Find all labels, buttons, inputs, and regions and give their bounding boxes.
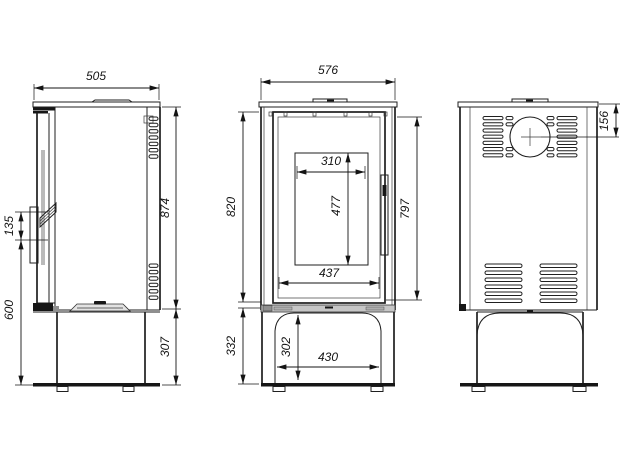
side-base-height-dim-label: 307 (158, 336, 172, 357)
dim-front-glass-width: 310 (297, 154, 365, 179)
dim-front-door-height: 797 (386, 117, 422, 300)
stove-dimension-drawing: 505 874 307 135 600 (0, 0, 624, 460)
dim-front-glass-height: 477 (329, 153, 348, 265)
side-handle-span-dim-label: 135 (2, 216, 16, 236)
side-lower-vents (149, 264, 158, 299)
front-plinth-bar (261, 305, 395, 312)
stove-dimension-drawing-page: 505 874 307 135 600 (0, 0, 624, 460)
back-view: 156 (458, 99, 620, 392)
front-base-height-dim-label: 332 (224, 336, 238, 356)
front-body-height-dim-label: 820 (224, 197, 238, 217)
front-glass-height-dim-label: 477 (329, 195, 343, 216)
front-base-opening-width-dim-label: 430 (318, 350, 338, 364)
side-pedestal (33, 312, 160, 392)
dim-side-depth: 505 (34, 69, 159, 100)
front-base-opening-height-dim-label: 302 (279, 337, 293, 357)
front-width-dim-label: 576 (318, 63, 338, 77)
front-door-width-dim-label: 437 (319, 266, 340, 280)
side-body-height-dim-label: 874 (158, 198, 172, 218)
dim-side-handle-height: 600 (2, 240, 34, 385)
side-handle-height-dim-label: 600 (2, 300, 16, 320)
front-view: 576 820 797 310 477 437 (224, 63, 422, 392)
side-depth-dim-label: 505 (86, 69, 106, 83)
front-glass-width-dim-label: 310 (321, 154, 341, 168)
side-body (33, 100, 160, 312)
dim-back-flue-offset: 156 (541, 104, 620, 137)
dim-side-body-height: 874 (158, 107, 181, 309)
side-view: 505 874 307 135 600 (2, 69, 181, 392)
back-lower-vents (485, 264, 577, 303)
dim-front-base-height: 332 (224, 308, 260, 384)
dim-side-base-height: 307 (158, 309, 181, 385)
side-upper-vents (149, 117, 158, 158)
dim-front-door-width: 437 (279, 266, 379, 289)
back-pedestal (460, 310, 598, 392)
dim-front-base-opening-height: 302 (279, 315, 298, 380)
dim-front-body-height: 820 (224, 112, 261, 302)
front-door-height-dim-label: 797 (398, 198, 412, 219)
back-flue-offset-dim-label: 156 (597, 111, 611, 131)
dim-front-width: 576 (261, 63, 395, 100)
